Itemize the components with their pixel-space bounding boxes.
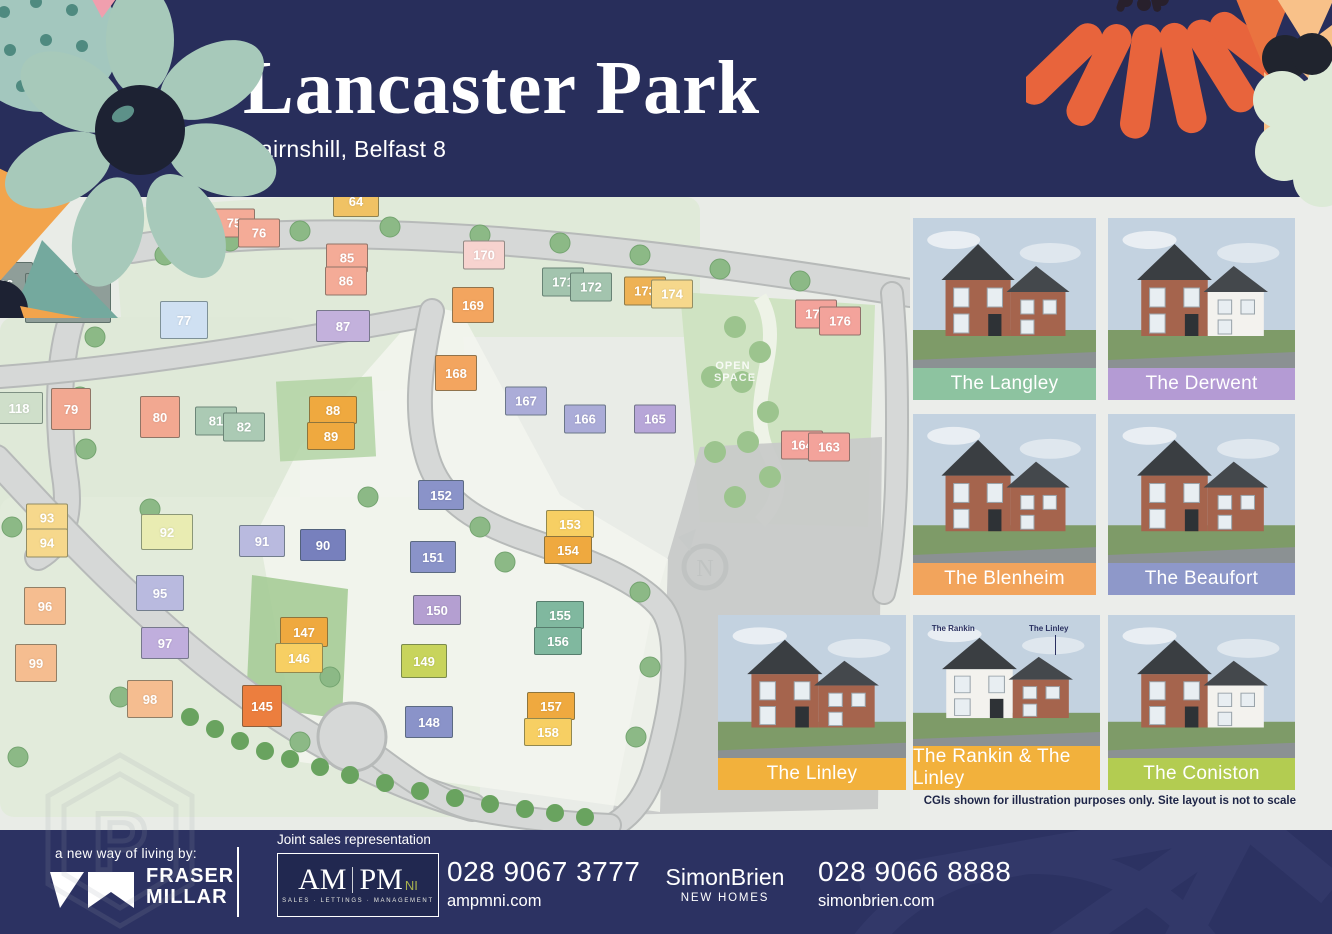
plot-number: 153	[559, 517, 581, 532]
plot-76: 76	[238, 219, 280, 248]
plot-number: 76	[252, 226, 266, 241]
house-cgi-image	[913, 414, 1096, 563]
plot-number: 86	[339, 274, 353, 289]
house-type-label: The Derwent	[1108, 368, 1295, 400]
plot-80: 80	[140, 396, 180, 438]
plot-149: 149	[401, 644, 447, 678]
plot-number: 146	[288, 651, 310, 666]
house-type-name: The Beaufort	[1145, 568, 1258, 590]
house-type-label: The Blenheim	[913, 563, 1096, 595]
plot-176: 176	[819, 307, 861, 336]
plot-number: 172	[580, 280, 602, 295]
lancaster-park-poster: Lancaster Park Cairnshill, Belfast 8	[0, 0, 1332, 934]
plot-148: 148	[405, 706, 453, 738]
simonbrien-website: simonbrien.com	[818, 892, 934, 911]
ampm-phone: 028 9067 3777	[447, 856, 640, 888]
house-illustration-icon	[1108, 218, 1295, 368]
plot-number: 81	[209, 414, 223, 429]
simonbrien-name: SimonBrien	[666, 865, 785, 889]
developer-name-line1: FRASER	[146, 866, 234, 887]
fraser-millar-logo: FRASER MILLAR	[48, 864, 234, 910]
disclaimer-text: CGIs shown for illustration purposes onl…	[924, 795, 1296, 807]
plot-152: 152	[418, 480, 464, 510]
house-cgi-image	[1108, 218, 1295, 368]
plot-number: 85	[340, 251, 354, 266]
plot-88: 88	[309, 396, 357, 424]
fraser-millar-mark-icon	[48, 864, 136, 910]
simonbrien-phone: 028 9066 8888	[818, 856, 1011, 888]
footer: a new way of living by: FRASER MILLAR Jo…	[0, 830, 1332, 934]
plot-118: 118	[0, 392, 43, 424]
plot-number: 87	[336, 319, 350, 334]
fraser-millar-wordmark: FRASER MILLAR	[146, 866, 234, 908]
house-type-name: The Derwent	[1145, 373, 1257, 395]
plot-153: 153	[546, 510, 594, 538]
plot-number: 163	[818, 440, 840, 455]
title-block: Lancaster Park Cairnshill, Belfast 8	[243, 48, 760, 163]
plot-number: 99	[29, 656, 43, 671]
plot-number: 118	[9, 401, 30, 416]
ampm-ni: NI	[405, 878, 418, 894]
developer-tagline: a new way of living by:	[55, 846, 197, 861]
house-cgi-image	[1108, 414, 1295, 563]
house-illustration-icon	[913, 414, 1096, 563]
plot-87: 87	[316, 310, 370, 342]
plot-156: 156	[534, 627, 582, 655]
house-illustration-icon	[913, 218, 1096, 368]
plot-number: 82	[237, 420, 251, 435]
house-cgi-image: The RankinThe Linley	[913, 615, 1100, 746]
plot-82: 82	[223, 413, 265, 442]
house-cgi-image	[1108, 615, 1295, 758]
house-card-the-linley: The Linley	[718, 615, 906, 790]
plot-number: 147	[293, 625, 315, 640]
plot-number: 155	[549, 608, 571, 623]
house-type-name: The Langley	[951, 373, 1059, 395]
cgi-annotation-line	[1055, 635, 1056, 655]
plot-89: 89	[307, 422, 355, 450]
house-card-the-blenheim: The Blenheim	[913, 414, 1096, 595]
plot-90: 90	[300, 529, 346, 561]
plot-number: 93	[40, 511, 54, 526]
plot-167: 167	[505, 387, 547, 416]
plot-166: 166	[564, 405, 606, 434]
plot-158: 158	[524, 718, 572, 746]
house-card-the-langley: The Langley	[913, 218, 1096, 400]
house-type-name: The Rankin & The Linley	[913, 746, 1100, 790]
plot-number: 151	[422, 550, 444, 565]
ampm-website: ampmni.com	[447, 892, 541, 911]
plot-number: 67	[61, 291, 75, 306]
house-card-the-beaufort: The Beaufort	[1108, 414, 1295, 595]
plot-170: 170	[463, 241, 505, 270]
plot-99: 99	[15, 644, 57, 682]
plot-number: 88	[326, 403, 340, 418]
plot-number: 91	[255, 534, 269, 549]
plot-number: 156	[547, 634, 569, 649]
plot-91: 91	[239, 525, 285, 557]
plot-number: 152	[430, 488, 452, 503]
plot-number: 170	[473, 248, 495, 263]
developer-name-line2: MILLAR	[146, 887, 234, 908]
plot-number: 148	[418, 715, 440, 730]
plot-number: 166	[574, 412, 596, 427]
house-illustration-icon	[718, 615, 906, 758]
plot-number: 80	[153, 410, 167, 425]
house-illustration-icon	[913, 615, 1100, 746]
plot-number: 167	[515, 394, 537, 409]
simonbrien-logo: SimonBrien NEW HOMES	[655, 853, 795, 915]
house-card-the-derwent: The Derwent	[1108, 218, 1295, 400]
plot-154: 154	[544, 536, 592, 564]
plot-96: 96	[24, 587, 66, 625]
plot-number: 95	[153, 586, 167, 601]
plot-number: 145	[251, 699, 273, 714]
plot-number: 149	[413, 654, 435, 669]
plot-number: 174	[661, 287, 683, 302]
plot-number: 98	[143, 692, 157, 707]
plot-67: 67	[25, 273, 111, 323]
plot-number: 150	[426, 603, 448, 618]
plot-number: 66	[0, 277, 13, 292]
house-type-label: The Beaufort	[1108, 563, 1295, 595]
plot-number: 96	[38, 599, 52, 614]
house-cgi-image	[913, 218, 1096, 368]
cgi-annotation-right: The Linley	[1029, 624, 1069, 633]
plot-79: 79	[51, 388, 91, 430]
plot-number: 165	[644, 412, 666, 427]
plot-95: 95	[136, 575, 184, 611]
house-cgi-image	[718, 615, 906, 758]
cgi-annotation-left: The Rankin	[932, 624, 975, 633]
plot-number: 169	[462, 298, 484, 313]
house-type-name: The Blenheim	[944, 568, 1065, 590]
plot-165: 165	[634, 405, 676, 434]
plot-94: 94	[26, 529, 68, 558]
plot-151: 151	[410, 541, 456, 573]
footer-divider	[237, 847, 239, 917]
ampm-logo: AM PM NI SALES · LETTINGS · MANAGEMENT	[277, 853, 439, 917]
plot-172: 172	[570, 273, 612, 302]
house-type-name: The Linley	[767, 763, 858, 785]
plot-number: 168	[445, 366, 467, 381]
plot-150: 150	[413, 595, 461, 625]
plot-number: 154	[557, 543, 579, 558]
ampm-pipe	[352, 867, 353, 893]
ampm-am: AM	[298, 866, 346, 894]
plot-92: 92	[141, 514, 193, 550]
joint-sales-label: Joint sales representation	[277, 832, 431, 847]
house-type-label: The Rankin & The Linley	[913, 746, 1100, 790]
plot-number: 90	[316, 538, 330, 553]
plot-157: 157	[527, 692, 575, 720]
plot-number: 79	[64, 402, 78, 417]
plot-163: 163	[808, 433, 850, 462]
ampm-pm: PM	[359, 866, 402, 894]
plot-number: 94	[40, 536, 54, 551]
house-type-label: The Linley	[718, 758, 906, 790]
plot-number: 92	[160, 525, 174, 540]
plot-97: 97	[141, 627, 189, 659]
plot-number: 97	[158, 636, 172, 651]
house-type-label: The Coniston	[1108, 758, 1295, 790]
plot-number: 157	[540, 699, 562, 714]
plot-155: 155	[536, 601, 584, 629]
plot-174: 174	[651, 280, 693, 309]
house-card-the-coniston: The Coniston	[1108, 615, 1295, 790]
plot-146: 146	[275, 643, 323, 673]
house-illustration-icon	[1108, 414, 1295, 563]
plot-98: 98	[127, 680, 173, 718]
simonbrien-sub: NEW HOMES	[681, 892, 769, 904]
page-subtitle: Cairnshill, Belfast 8	[243, 136, 760, 163]
plot-number: 89	[324, 429, 338, 444]
house-type-label: The Langley	[913, 368, 1096, 400]
ampm-tagline: SALES · LETTINGS · MANAGEMENT	[282, 898, 434, 904]
plot-145: 145	[242, 685, 282, 727]
house-illustration-icon	[1108, 615, 1295, 758]
plot-169: 169	[452, 287, 494, 323]
plot-77: 77	[160, 301, 208, 339]
plot-number: 158	[537, 725, 559, 740]
house-type-name: The Coniston	[1143, 763, 1260, 785]
plot-168: 168	[435, 355, 477, 391]
plot-86: 86	[325, 267, 367, 296]
plot-number: 77	[177, 313, 191, 328]
house-card-the-rankin-the-linley: The RankinThe Linley The Rankin & The Li…	[913, 615, 1100, 790]
plot-number: 176	[829, 314, 851, 329]
page-title: Lancaster Park	[243, 48, 760, 128]
